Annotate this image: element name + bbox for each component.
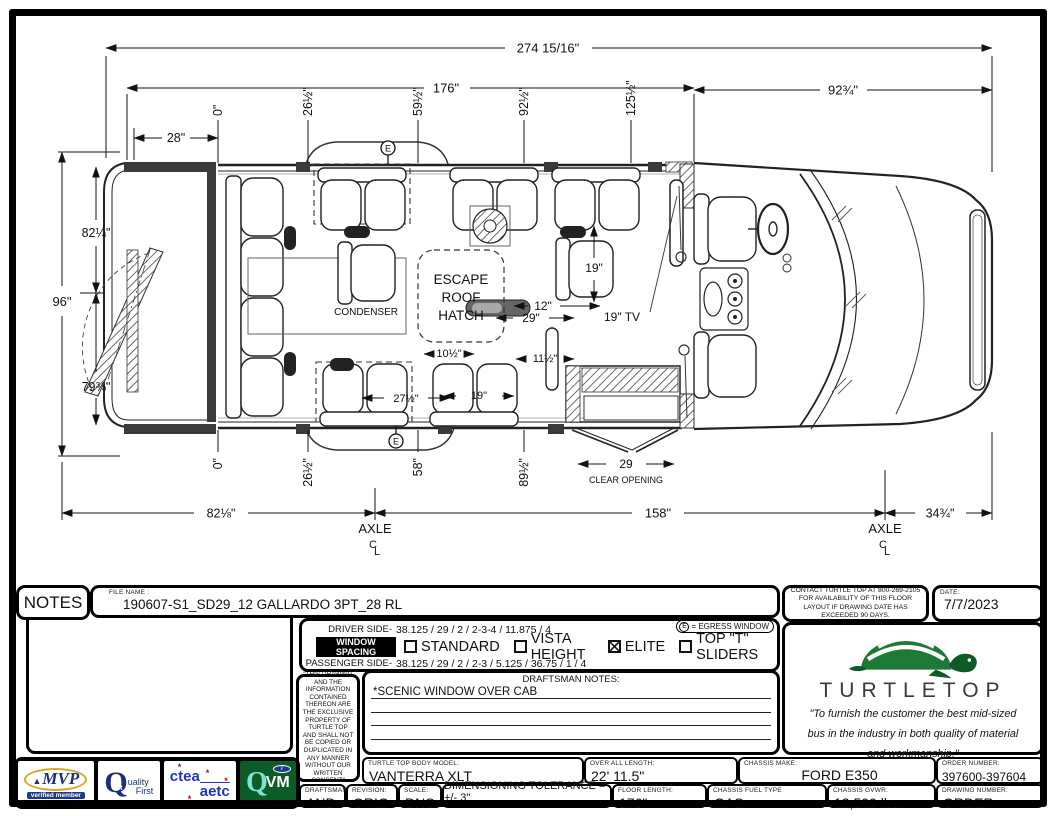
egress-pin-icon: E bbox=[679, 622, 689, 632]
dim-front-overhang: 34¾" bbox=[926, 507, 955, 521]
fuel-type-cell: CHASSIS FUEL TYPE GAS bbox=[707, 784, 827, 808]
tolerance-value: DIMENSIONING TOLERANCE = +/- 3" bbox=[444, 780, 610, 804]
escape-hatch-label-1: ESCAPE bbox=[434, 272, 489, 287]
notes-label: NOTES bbox=[16, 585, 90, 620]
scale-cell: SCALE: DNS bbox=[398, 784, 442, 808]
order-number-value: 397600-397604 bbox=[938, 770, 1026, 784]
date-label: DATE: bbox=[940, 589, 1038, 596]
dim-rear-overhang: 28" bbox=[167, 131, 185, 145]
egress-window-legend: E = EGRESS WINDOW bbox=[676, 620, 774, 633]
svg-text:L: L bbox=[884, 546, 890, 558]
floor-length-cell: FLOOR LENGTH: 176" bbox=[612, 784, 707, 808]
window-spacing-box: E = EGRESS WINDOW DRIVER SIDE- 38.125 / … bbox=[299, 618, 780, 672]
floor-plan-drawing: E E bbox=[0, 0, 1056, 584]
dim-19-driver: 19" bbox=[585, 261, 603, 275]
draftsman-note-line bbox=[371, 740, 771, 753]
clear-opening-label: CLEAR OPENING bbox=[589, 475, 663, 485]
file-name-value: 190607-S1_SD29_12 GALLARDO 3PT_28 RL bbox=[109, 597, 402, 612]
draftsman-note-line: *SCENIC WINDOW OVER CAB bbox=[371, 686, 771, 699]
draftsman-note-line bbox=[371, 699, 771, 712]
tv-label: 19" TV bbox=[604, 310, 640, 324]
checkbox-vista-height[interactable] bbox=[514, 640, 527, 653]
mvp-logo: ▲MVP verified member bbox=[18, 761, 94, 805]
passenger-side-label: PASSENGER SIDE- bbox=[304, 658, 396, 669]
chassis-make-cell: CHASSIS MAKE: FORD E350 bbox=[738, 757, 936, 784]
draftsman-value: AND bbox=[301, 795, 336, 811]
top-mark-2: 59½" bbox=[411, 87, 425, 116]
contact-box: CONTACT TURTLE TOP AT 800-269-2105 FOR A… bbox=[782, 585, 929, 622]
scale-value: DNS bbox=[400, 795, 435, 811]
quality-first-logo: Q1st ualityFirst bbox=[98, 761, 160, 805]
bottom-mark-3: 89½" bbox=[517, 458, 531, 487]
dim-floor-length: 176" bbox=[433, 81, 460, 96]
checkbox-elite[interactable] bbox=[608, 640, 621, 653]
checkbox-standard[interactable] bbox=[404, 640, 417, 653]
top-mark-1: 26½" bbox=[301, 87, 315, 116]
floor-length-value: 176" bbox=[614, 795, 647, 811]
maple-leaf-icon: * bbox=[206, 768, 210, 778]
drawing-number-cell: DRAWING NUMBER: ORDER bbox=[936, 784, 1044, 808]
rear-bench-seat bbox=[226, 176, 296, 418]
dim-wheelbase: 158" bbox=[645, 506, 672, 521]
dim-rear-axle: 82⅛" bbox=[207, 507, 236, 521]
legal-notice: "THIS DRAWING AND THE INFORMATION CONTAI… bbox=[296, 674, 360, 782]
rear-ramp bbox=[82, 248, 163, 396]
chassis-make-value: FORD E350 bbox=[740, 768, 934, 782]
bottom-mark-1: 26½" bbox=[301, 458, 315, 487]
svg-text:L: L bbox=[374, 546, 380, 558]
tolerance-cell: DIMENSIONING TOLERANCE = +/- 3" bbox=[442, 784, 612, 808]
maple-leaf-icon: * bbox=[178, 762, 182, 772]
brand-name: TURTLETOP bbox=[785, 680, 1041, 702]
brand-box: TURTLETOP "To furnish the customer the b… bbox=[782, 622, 1044, 755]
file-name-box: FILE NAME : 190607-S1_SD29_12 GALLARDO 3… bbox=[90, 585, 780, 618]
draftsman-notes-header: DRAFTSMAN NOTES: bbox=[371, 673, 771, 686]
dim-overall-length: 274 15/16" bbox=[517, 41, 580, 56]
fuel-type-value: GAS bbox=[709, 795, 744, 811]
option-elite: ELITE bbox=[608, 639, 665, 655]
draftsman-notes-box: DRAFTSMAN NOTES: *SCENIC WINDOW OVER CAB bbox=[362, 670, 780, 755]
revision-value: ORIG bbox=[348, 795, 389, 811]
front-axle-label: AXLE bbox=[868, 521, 902, 536]
dimensions bbox=[58, 48, 992, 520]
revision-cell: REVISION: ORIG bbox=[346, 784, 398, 808]
dim-body-rear: 79¾" bbox=[82, 380, 111, 394]
dim-10-5: 10½" bbox=[436, 348, 461, 360]
qvm-logo: QVM F bbox=[240, 761, 296, 805]
svg-text:E: E bbox=[385, 144, 391, 154]
top-mark-4: 125½" bbox=[624, 80, 638, 116]
gvwr-value: 12,500 lbs. bbox=[829, 795, 903, 811]
turtle-logo bbox=[823, 628, 1003, 680]
maple-leaf-icon: * bbox=[224, 776, 228, 786]
drawing-number-value: ORDER bbox=[938, 795, 994, 811]
dim-11-5: 11½" bbox=[533, 353, 558, 365]
bottom-mark-0: 0" bbox=[211, 458, 225, 469]
dim-front-section: 92¾" bbox=[828, 83, 858, 98]
checkbox-top-t-sliders[interactable] bbox=[679, 640, 692, 653]
cab bbox=[676, 163, 992, 429]
draftsman-note-line bbox=[371, 713, 771, 726]
draftsman-note-line bbox=[371, 726, 771, 739]
date-value: 7/7/2023 bbox=[940, 596, 999, 612]
clear-opening-value: 29 bbox=[619, 457, 633, 471]
gvwr-cell: CHASSIS GVWR: 12,500 lbs. bbox=[827, 784, 936, 808]
dim-19-pass: 19" bbox=[471, 390, 487, 402]
dim-27-5: 27½" bbox=[393, 393, 418, 405]
drawing-sheet: E E bbox=[0, 0, 1056, 816]
brand-quote-1: "To furnish the customer the best mid-si… bbox=[785, 704, 1041, 724]
ctea-aetc-logo: ctea aetc * * * * bbox=[164, 761, 236, 805]
svg-text:E: E bbox=[393, 437, 399, 447]
ntea-triangle-icon: ▲ bbox=[32, 776, 41, 786]
passenger-side-values: 38.125 / 29 / 2 / 2-3 / 5.125 / 36.75 / … bbox=[396, 658, 586, 670]
bottom-mark-2: 58" bbox=[411, 458, 425, 476]
option-standard: STANDARD bbox=[404, 639, 500, 655]
order-number-cell: ORDER NUMBER: 397600-397604 bbox=[936, 757, 1044, 784]
file-name-label: FILE NAME : bbox=[109, 589, 774, 596]
passenger-side-seats bbox=[316, 328, 558, 426]
date-box: DATE: 7/7/2023 bbox=[932, 585, 1044, 622]
tv-19in bbox=[650, 180, 683, 312]
rear-axle-label: AXLE bbox=[358, 521, 392, 536]
window-spacing-title: WINDOW SPACING bbox=[316, 637, 396, 657]
draftsman-cell: DRAFTSMAN: AND bbox=[299, 784, 346, 808]
driver-side-label: DRIVER SIDE- bbox=[304, 624, 396, 635]
dim-29: 29" bbox=[522, 311, 540, 325]
condenser-label: CONDENSER bbox=[334, 307, 398, 318]
ford-oval-icon: F bbox=[273, 765, 291, 773]
escape-hatch-label-2: ROOF bbox=[442, 290, 481, 305]
top-mark-3: 92½" bbox=[517, 87, 531, 116]
entry-door-stepwell bbox=[566, 366, 680, 452]
escape-hatch-label-3: HATCH bbox=[438, 308, 484, 323]
brand-quote-2: bus in the industry in both quality of m… bbox=[785, 724, 1041, 744]
maple-leaf-icon: * bbox=[188, 794, 192, 804]
mid-seat-left bbox=[338, 242, 395, 304]
top-mark-0: 0" bbox=[211, 105, 225, 116]
dim-overall-width: 96" bbox=[52, 294, 71, 309]
option-top-t-sliders: TOP "T" SLIDERS bbox=[679, 631, 773, 663]
certification-logos: ▲MVP verified member Q1st ualityFirst ct… bbox=[14, 757, 300, 809]
dim-body-front: 82¼" bbox=[82, 226, 111, 240]
